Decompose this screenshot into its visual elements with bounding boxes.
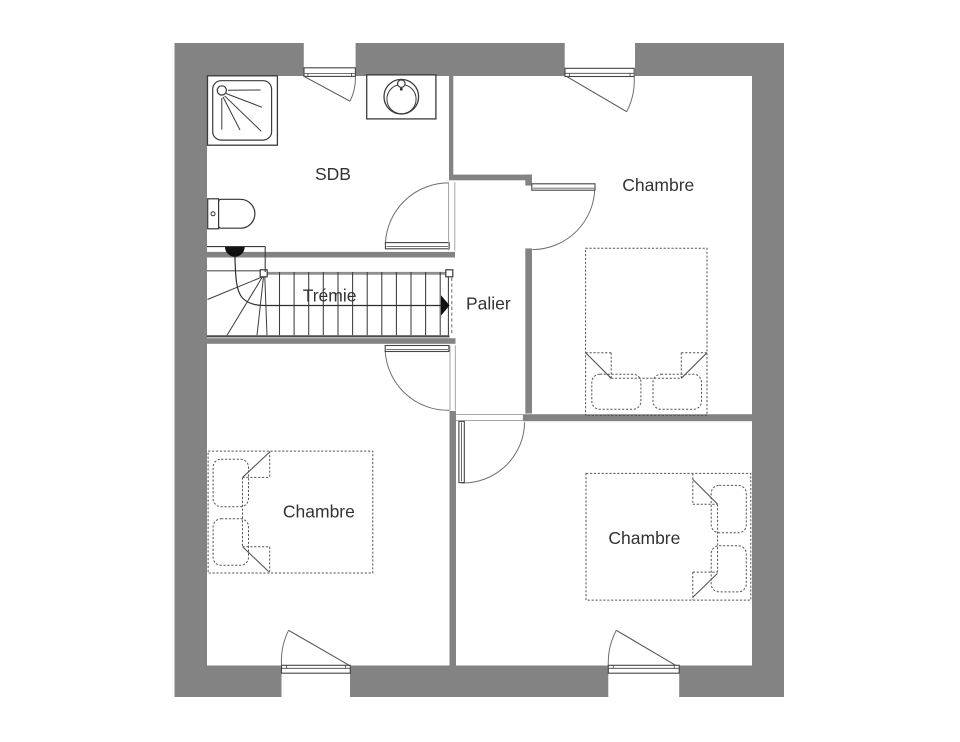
svg-text:Palier: Palier	[466, 294, 511, 314]
svg-text:Chambre: Chambre	[622, 175, 694, 195]
svg-text:Chambre: Chambre	[283, 501, 355, 521]
svg-text:Chambre: Chambre	[608, 528, 680, 548]
svg-text:Trémie: Trémie	[303, 286, 357, 306]
svg-text:SDB: SDB	[315, 164, 351, 184]
